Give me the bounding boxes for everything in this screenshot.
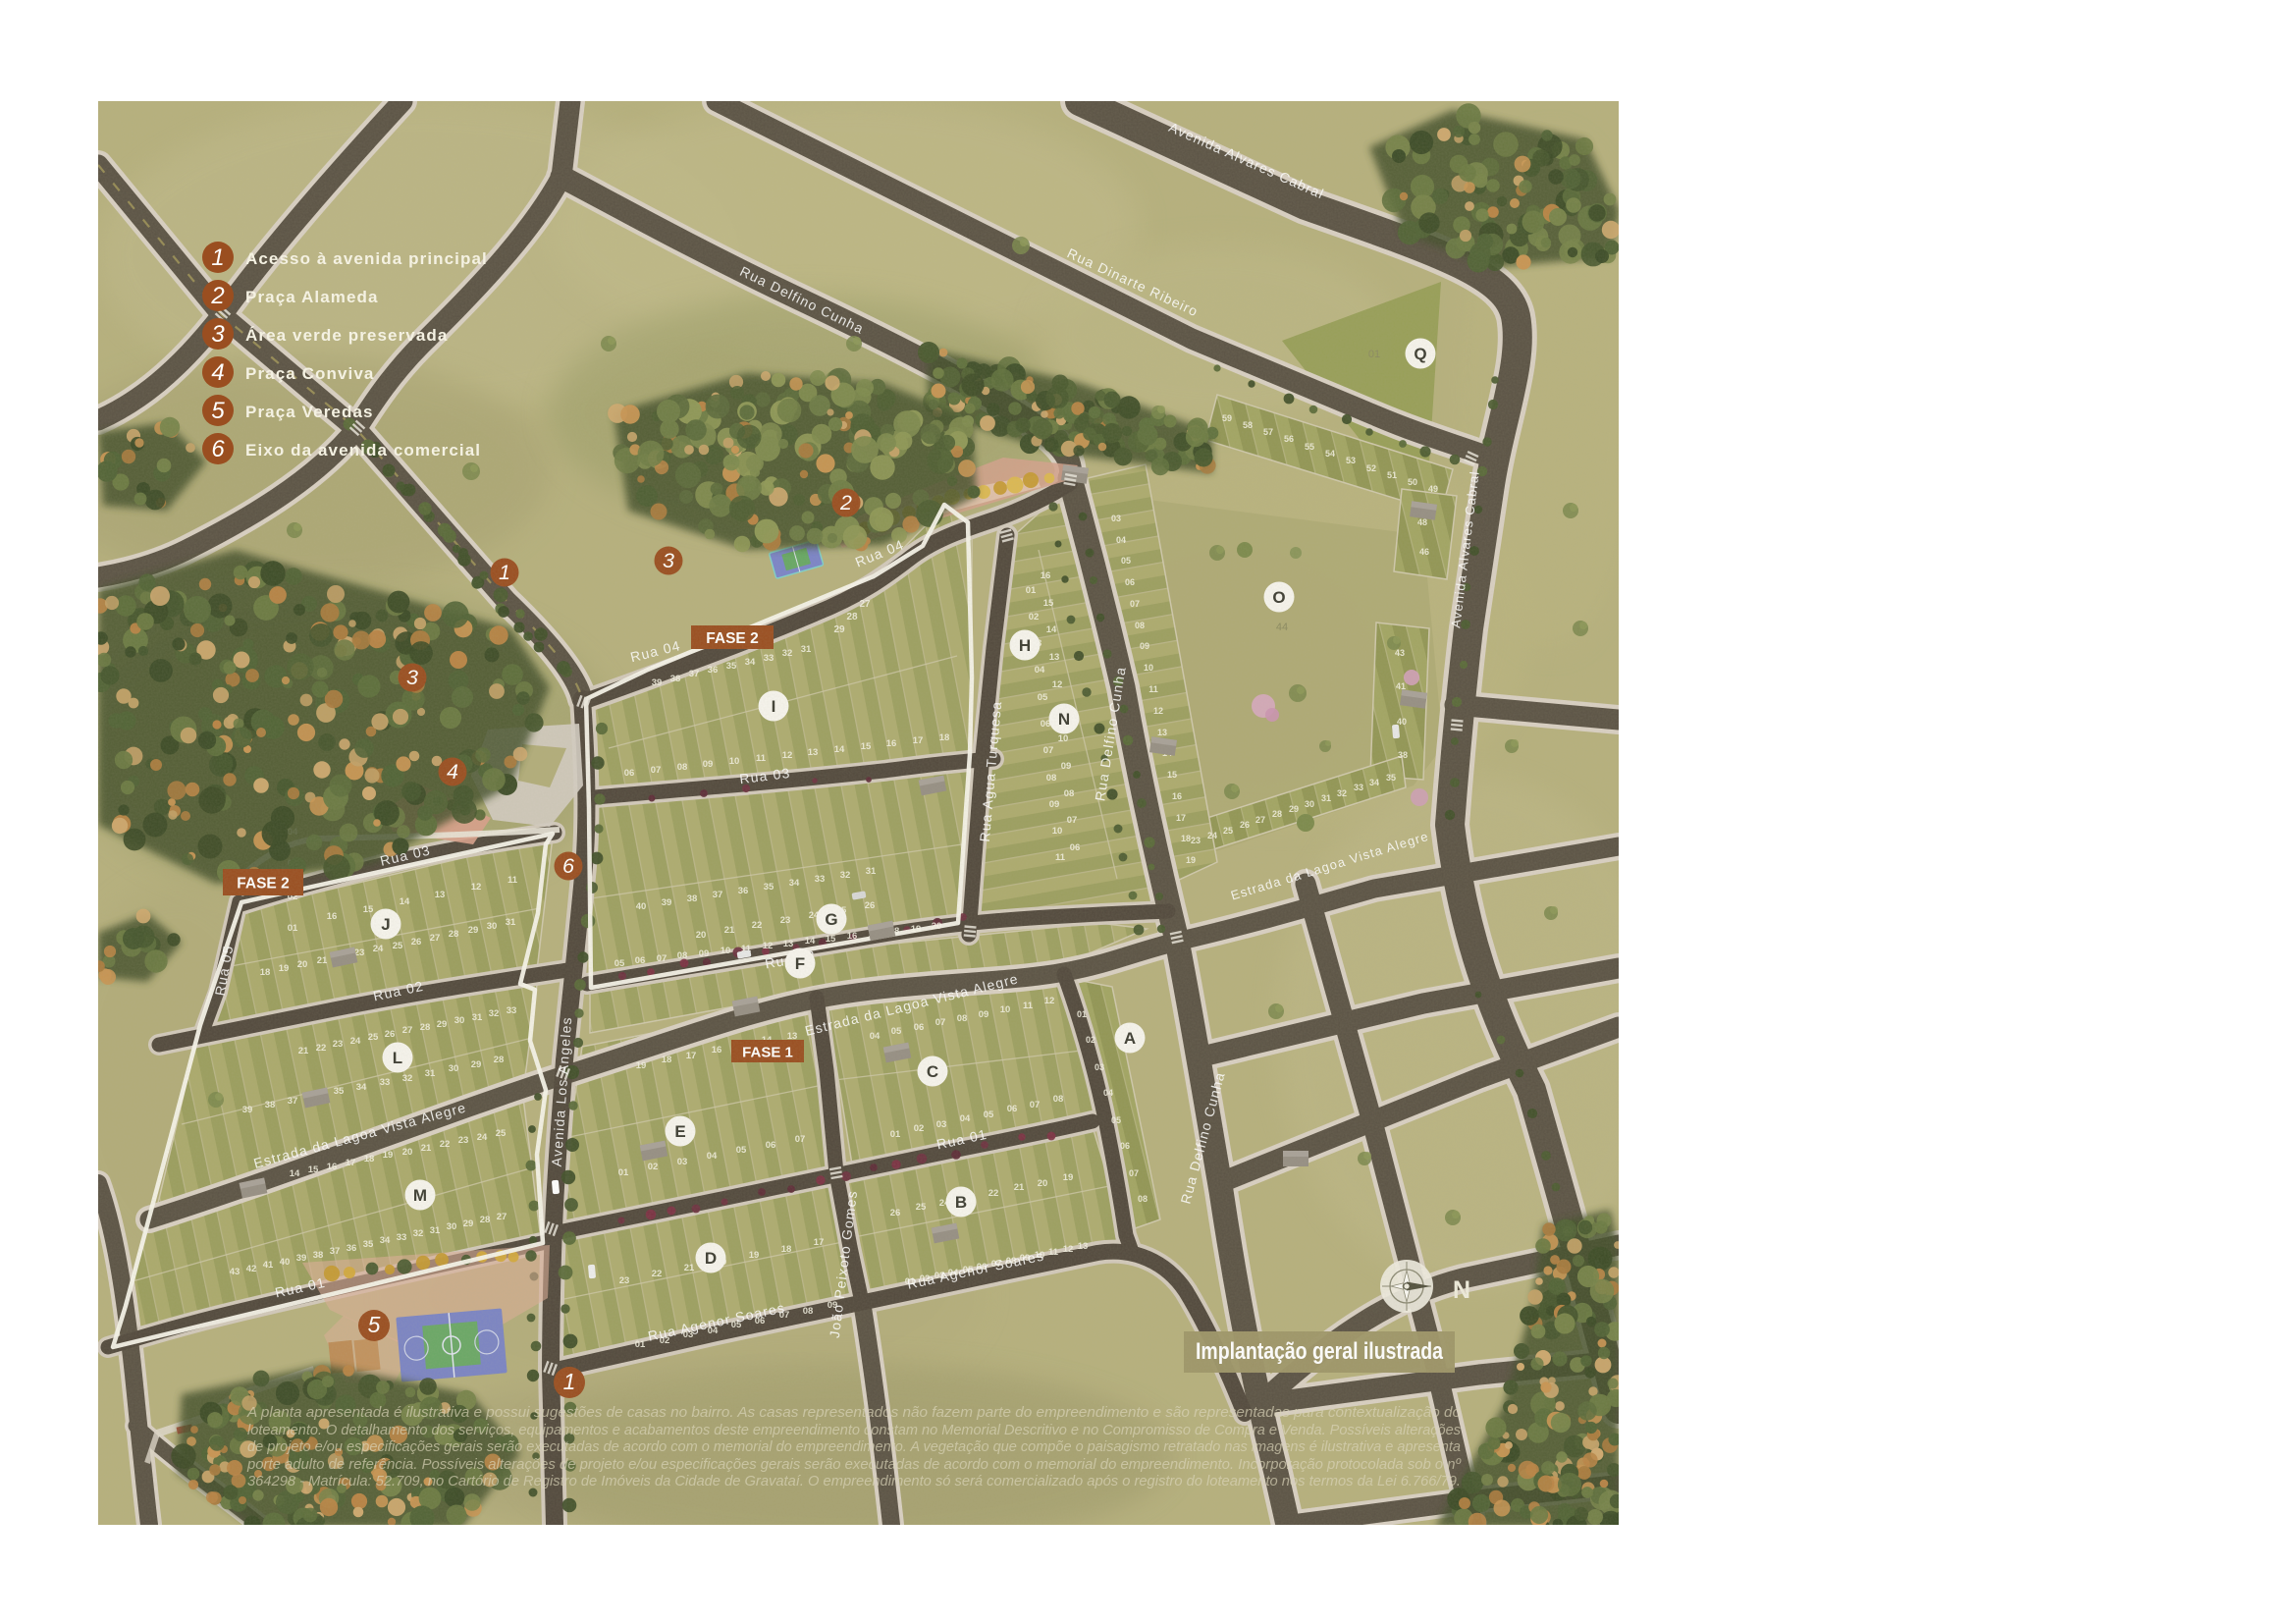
svg-text:Eixo da avenida comercial: Eixo da avenida comercial: [245, 441, 481, 460]
svg-text:Praça Alameda: Praça Alameda: [245, 288, 379, 306]
svg-text:3: 3: [211, 321, 225, 348]
svg-text:2: 2: [210, 283, 224, 309]
svg-text:Praça Conviva: Praça Conviva: [245, 364, 374, 383]
svg-text:1: 1: [211, 244, 224, 271]
svg-text:6: 6: [211, 436, 225, 462]
svg-text:Acesso à avenida principal: Acesso à avenida principal: [245, 249, 488, 268]
svg-text:Área verde preservada: Área verde preservada: [245, 326, 448, 345]
svg-text:Praça Veredas: Praça Veredas: [245, 403, 374, 421]
svg-text:5: 5: [211, 398, 225, 424]
svg-text:4: 4: [211, 359, 224, 386]
